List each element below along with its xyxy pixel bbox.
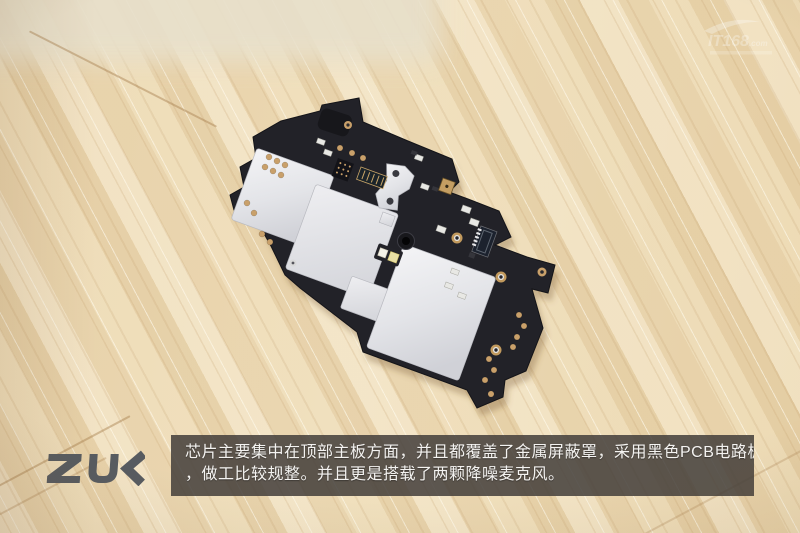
teardown-photo: IT168.com ZUK 芯片主要集中在顶部主板方面，并且都覆盖了金属屏蔽罩，… — [0, 0, 800, 533]
caption-text-line2: ，做工比较规整。并且更是搭载了两颗降噪麦克风。 — [185, 464, 744, 486]
screw-hole-center — [346, 123, 349, 126]
watermark-swoosh — [704, 20, 760, 34]
caption-bar: 芯片主要集中在顶部主板方面，并且都覆盖了金属屏蔽罩，采用黑色PCB电路板 ，做工… — [171, 435, 754, 496]
watermark-it168: IT168.com — [698, 15, 790, 61]
watermark-tagline-bar — [710, 51, 772, 55]
caption-text-line1: 芯片主要集中在顶部主板方面，并且都覆盖了金属屏蔽罩，采用黑色PCB电路板 — [185, 442, 744, 464]
zuk-logo: ZUK — [45, 450, 145, 486]
watermark-text: IT168.com — [708, 33, 768, 50]
camera-sensor-lens — [402, 237, 410, 245]
zuk-logo-letters — [47, 454, 144, 483]
